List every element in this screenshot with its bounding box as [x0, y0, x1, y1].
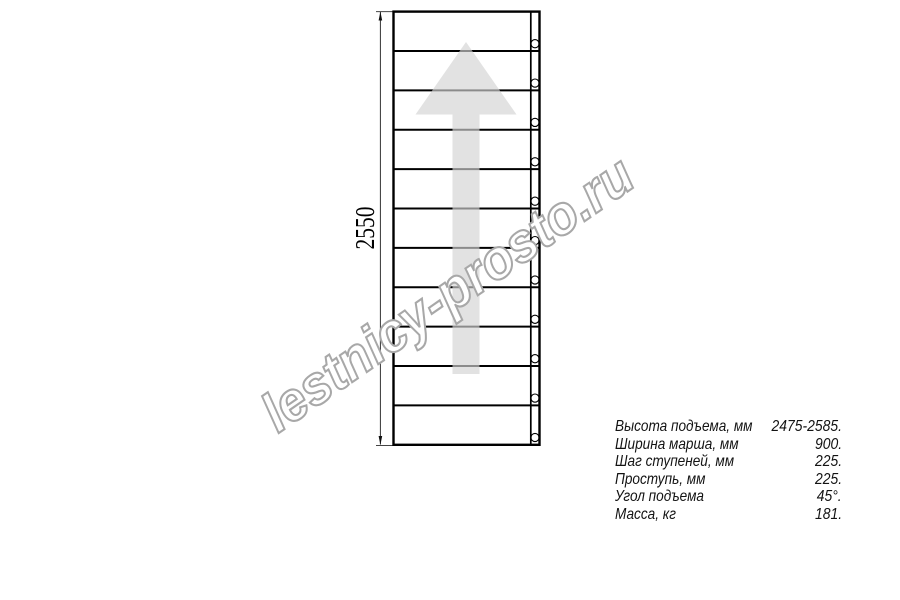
svg-text:2550: 2550 [350, 207, 380, 250]
svg-text:lestnicy-prosto.ru: lestnicy-prosto.ru [249, 143, 644, 443]
